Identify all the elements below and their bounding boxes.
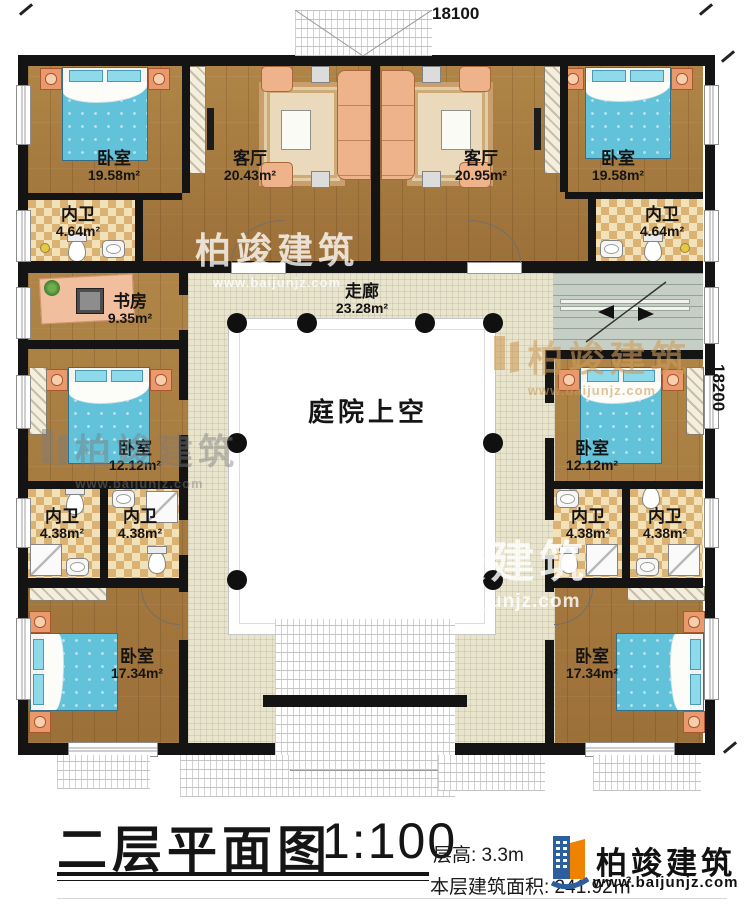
window xyxy=(704,85,719,145)
room-name: 卧室 xyxy=(97,150,131,168)
column xyxy=(227,433,247,453)
lower-roof xyxy=(438,755,545,791)
room-label-living-left: 客厅 20.43m² xyxy=(200,150,300,183)
room-name: 内卫 xyxy=(123,508,157,526)
floor-plan-page: 18100 18200 卧室 19.58m² 内卫 4.64m² 客厅 20.4… xyxy=(0,0,750,906)
shower xyxy=(586,544,618,576)
nightstand xyxy=(558,369,580,391)
inner-wall xyxy=(179,555,188,592)
room-area: 4.64m² xyxy=(56,224,100,239)
bed-pillow xyxy=(33,674,44,705)
room-label-bedroom-mid-right: 卧室 12.12m² xyxy=(542,440,642,473)
room-area: 4.38m² xyxy=(40,526,84,541)
bed-pillow xyxy=(107,70,141,82)
floor-height-label: 层高: 3.3m xyxy=(433,840,524,867)
dimension-top: 18100 xyxy=(432,4,479,24)
sink xyxy=(66,558,89,576)
room-name: 客厅 xyxy=(233,150,267,168)
nightstand xyxy=(29,611,51,633)
lower-roof xyxy=(180,755,290,797)
room-area: 4.38m² xyxy=(643,526,687,541)
bed-pillow xyxy=(592,70,626,82)
window xyxy=(16,287,31,339)
inner-wall xyxy=(28,481,179,489)
courtyard-void xyxy=(228,318,496,635)
bed-fold xyxy=(670,634,690,710)
bed-pillow xyxy=(111,370,143,382)
window xyxy=(704,618,719,700)
window xyxy=(704,498,719,548)
bed-pillow xyxy=(75,370,107,382)
room-name: 客厅 xyxy=(464,150,498,168)
column xyxy=(227,313,247,333)
dimension-tick xyxy=(721,50,735,63)
room-name: 卧室 xyxy=(118,440,152,458)
toilet xyxy=(560,551,578,574)
room-label-bath-mid-right-1: 内卫 4.38m² xyxy=(548,508,628,541)
bed-pillow xyxy=(33,639,44,670)
room-area: 4.38m² xyxy=(118,526,162,541)
roof-hip-lines xyxy=(295,10,432,56)
window xyxy=(704,287,719,344)
sofa xyxy=(381,70,415,180)
room-name: 内卫 xyxy=(571,508,605,526)
room-area: 4.64m² xyxy=(640,224,684,239)
window xyxy=(16,618,31,700)
nightstand xyxy=(40,68,62,90)
window xyxy=(16,375,31,429)
room-name: 内卫 xyxy=(645,206,679,224)
inner-wall xyxy=(560,66,568,192)
roof-ridge xyxy=(275,770,455,771)
nightstand xyxy=(148,68,170,90)
room-label-study: 书房 9.35m² xyxy=(80,293,180,326)
room-name: 内卫 xyxy=(61,206,95,224)
room-label-bath-mid-right-2: 内卫 4.38m² xyxy=(625,508,705,541)
inner-wall xyxy=(179,330,188,400)
room-label-bath-mid-left-2: 内卫 4.38m² xyxy=(100,508,180,541)
inner-wall xyxy=(545,555,554,592)
column xyxy=(415,313,435,333)
room-area: 17.34m² xyxy=(566,666,618,681)
room-name: 卧室 xyxy=(575,648,609,666)
wardrobe xyxy=(686,367,704,435)
window xyxy=(16,210,31,262)
room-label-corridor: 走廊 23.28m² xyxy=(312,283,412,316)
room-label-bath-mid-left-1: 内卫 4.38m² xyxy=(22,508,102,541)
room-name: 内卫 xyxy=(45,508,79,526)
bed-pillow xyxy=(690,639,701,670)
armchair xyxy=(261,66,293,92)
room-name: 卧室 xyxy=(120,648,154,666)
column xyxy=(483,313,503,333)
room-label-bedroom-bottom-right: 卧室 17.34m² xyxy=(542,648,642,681)
inner-wall xyxy=(179,273,188,295)
inner-wall xyxy=(545,350,703,359)
door-sill xyxy=(231,262,286,274)
armchair xyxy=(459,66,491,92)
plant xyxy=(44,280,60,296)
room-area: 17.34m² xyxy=(111,666,163,681)
brand-logo-icon xyxy=(549,832,591,892)
room-area: 23.28m² xyxy=(336,301,388,316)
room-area: 19.58m² xyxy=(592,168,644,183)
lower-roof xyxy=(593,755,701,791)
inner-wall xyxy=(545,359,554,403)
room-label-bath-top-left: 内卫 4.64m² xyxy=(33,206,123,239)
wardrobe xyxy=(29,367,47,435)
sink xyxy=(600,240,623,258)
room-label-courtyard: 庭院上空 xyxy=(268,392,468,429)
inner-wall xyxy=(553,481,703,489)
room-area: 20.95m² xyxy=(455,168,507,183)
room-name: 卧室 xyxy=(601,150,635,168)
tv xyxy=(207,108,214,150)
room-name: 书房 xyxy=(113,293,147,311)
chimney-roof xyxy=(295,10,432,56)
door-sill xyxy=(467,262,522,274)
inner-wall xyxy=(565,192,703,199)
side-table xyxy=(311,66,330,83)
sink xyxy=(636,558,659,576)
room-name: 走廊 xyxy=(345,283,379,301)
room-area: 12.12m² xyxy=(109,458,161,473)
inner-wall xyxy=(28,578,179,588)
room-label-bedroom-bottom-left: 卧室 17.34m² xyxy=(87,648,187,681)
toilet xyxy=(68,239,86,262)
bed-pillow xyxy=(690,674,701,705)
courtyard-frame xyxy=(239,329,485,624)
floor-drain xyxy=(680,243,690,253)
inner-wall xyxy=(28,340,179,349)
bed-fold xyxy=(44,634,64,710)
sink xyxy=(102,240,125,258)
room-area: 20.43m² xyxy=(224,168,276,183)
room-label-bath-top-right: 内卫 4.64m² xyxy=(617,206,707,239)
nightstand xyxy=(683,611,705,633)
bed xyxy=(62,67,148,161)
dimension-tick xyxy=(699,3,713,16)
room-label-bedroom-top-right: 卧室 19.58m² xyxy=(568,150,668,183)
balcony-beam xyxy=(263,695,467,707)
sink xyxy=(112,490,135,508)
room-name: 内卫 xyxy=(648,508,682,526)
column xyxy=(483,570,503,590)
side-table xyxy=(422,66,441,83)
window xyxy=(16,85,31,145)
closet xyxy=(627,586,705,601)
nightstand xyxy=(46,369,68,391)
room-label-living-right: 客厅 20.95m² xyxy=(431,150,531,183)
inner-wall xyxy=(28,193,182,200)
inner-wall xyxy=(135,200,143,261)
title-underline xyxy=(57,872,429,876)
inner-wall xyxy=(371,66,380,261)
closet xyxy=(29,586,107,601)
toilet xyxy=(642,486,660,509)
room-label-bedroom-top-left: 卧室 19.58m² xyxy=(64,150,164,183)
floor-drain xyxy=(40,243,50,253)
coffee-table xyxy=(281,110,311,150)
bed-pillow xyxy=(69,70,103,82)
dimension-tick xyxy=(19,3,33,16)
room-area: 9.35m² xyxy=(108,311,152,326)
title-underline xyxy=(57,880,429,881)
room-label-bedroom-mid-left: 卧室 12.12m² xyxy=(85,440,185,473)
dimension-right: 18200 xyxy=(708,364,728,411)
title-block: 二层平面图 1:100 层高: 3.3m 本层建筑面积: 241.92㎡ 柏竣建… xyxy=(0,800,750,906)
coffee-table xyxy=(441,110,471,150)
sink xyxy=(556,490,579,508)
dimension-tick xyxy=(723,741,737,754)
bed-pillow xyxy=(630,70,664,82)
outer-wall-top xyxy=(18,55,715,66)
nightstand xyxy=(150,369,172,391)
stair-direction-arrow xyxy=(580,276,672,348)
nightstand xyxy=(29,711,51,733)
nightstand xyxy=(671,68,693,90)
bed-pillow xyxy=(623,370,655,382)
inner-wall xyxy=(182,66,190,193)
toilet xyxy=(148,551,166,574)
inner-wall xyxy=(553,578,703,588)
inner-wall xyxy=(28,261,703,273)
inner-wall xyxy=(588,199,596,261)
floor-plan: 18100 18200 卧室 19.58m² 内卫 4.64m² 客厅 20.4… xyxy=(0,0,750,906)
room-area: 19.58m² xyxy=(88,168,140,183)
column xyxy=(483,433,503,453)
nightstand xyxy=(662,369,684,391)
nightstand xyxy=(683,711,705,733)
tv xyxy=(534,108,541,150)
room-area: 12.12m² xyxy=(566,458,618,473)
sofa xyxy=(337,70,371,180)
divider xyxy=(57,898,727,899)
brand-url: www.baijunjz.com xyxy=(593,874,738,891)
bed-pillow xyxy=(587,370,619,382)
room-area: 4.38m² xyxy=(566,526,610,541)
lower-roof xyxy=(57,755,150,789)
toilet xyxy=(644,239,662,262)
room-name: 卧室 xyxy=(575,440,609,458)
column xyxy=(227,570,247,590)
bed xyxy=(585,67,671,159)
shower xyxy=(668,544,700,576)
shower xyxy=(30,544,62,576)
side-table xyxy=(311,171,330,188)
